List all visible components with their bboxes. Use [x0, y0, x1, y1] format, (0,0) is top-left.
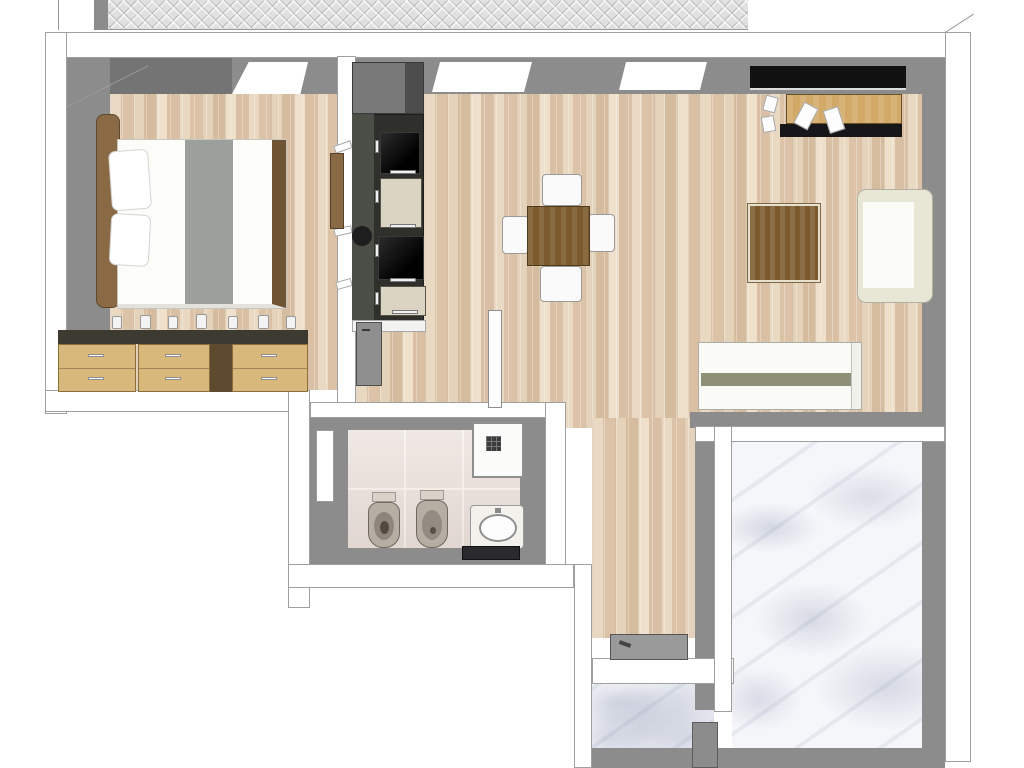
pillow [109, 213, 152, 267]
herringbone-paving [108, 0, 748, 30]
toilet-bowl-center [380, 521, 389, 534]
dining-table [527, 206, 590, 266]
dresser-side-panel [210, 344, 232, 392]
entrance-door-mat [610, 634, 688, 660]
kitchen-sink [352, 226, 372, 246]
corner-sofa [858, 190, 932, 302]
kitchen-tall-cabinet [352, 62, 424, 114]
bidet-basin [422, 510, 442, 540]
washbasin-unit [470, 505, 524, 549]
toilet-cistern [372, 492, 396, 502]
paper-sheet [761, 115, 777, 133]
appliance-handle [392, 310, 418, 314]
daybed-armrest [851, 343, 861, 409]
faucet [495, 508, 501, 513]
appliance-handle [390, 224, 416, 228]
dining-chair [588, 214, 615, 252]
dark-glazed-window [750, 66, 906, 90]
bottle [168, 316, 178, 329]
bottle [196, 314, 207, 329]
bidet [416, 500, 448, 548]
bed-runner [185, 140, 233, 304]
washbasin-bowl [479, 514, 517, 542]
entrance-bottom-wall [592, 658, 734, 684]
door-key-detail [619, 640, 632, 648]
door-handle [362, 329, 370, 331]
dining-chair [540, 266, 582, 302]
appliance-handle [375, 244, 379, 257]
corridor-grey-door [356, 322, 382, 386]
coffee-table [748, 204, 820, 282]
terrace-top-wall [695, 426, 945, 442]
bedroom-bottom-wall [45, 390, 310, 412]
bidet-drain [430, 527, 436, 534]
bottle [286, 316, 296, 329]
right-outer-wall [945, 32, 971, 762]
bottle [140, 315, 151, 329]
dresser [58, 344, 136, 392]
right-wall-face [922, 58, 945, 748]
terrace-left-wall [714, 426, 732, 712]
bottle [228, 316, 238, 329]
bathroom-top-wall [310, 402, 566, 418]
upper-wall-edge-line [58, 0, 59, 30]
appliance-handle [375, 140, 379, 153]
bathroom-bottom-wall [288, 564, 574, 588]
appliance-handle [375, 292, 379, 305]
dining-chair [502, 216, 529, 254]
living-window [619, 62, 707, 90]
top-outer-wall [45, 32, 970, 58]
oven [380, 132, 420, 174]
exterior-wall-stub [692, 722, 718, 768]
appliance-handle [390, 170, 416, 174]
cabinet-side-face [405, 63, 423, 113]
toilet [368, 502, 400, 548]
bathroom-window [316, 430, 334, 502]
bottom-wall-band [592, 748, 945, 768]
terrace-floor [732, 442, 922, 748]
appliance-handle [390, 278, 416, 282]
cooktop [378, 236, 424, 280]
wall-mirror-panel [330, 153, 344, 229]
bathroom-right-wall [545, 402, 566, 586]
dining-window [432, 62, 532, 92]
top-right-corner-line [945, 13, 974, 32]
bidet-fitting [420, 490, 444, 500]
herringbone-side-wall [94, 0, 108, 30]
kitchen-drawer-front [380, 178, 422, 228]
hallway-floor [592, 418, 695, 638]
shower-drain [486, 436, 501, 451]
appliance-handle [375, 190, 379, 203]
kitchen-counter-edge [352, 114, 374, 322]
hallway-left-wall [574, 564, 592, 768]
bottle [112, 316, 122, 329]
daybed [698, 342, 862, 410]
bed-headboard [96, 114, 120, 308]
dresser [138, 344, 210, 392]
dining-chair [542, 174, 582, 206]
open-white-door [488, 310, 502, 408]
pillow [108, 149, 152, 212]
dresser-top-panel [58, 330, 308, 344]
dresser [232, 344, 308, 392]
bottle [258, 315, 269, 329]
floor-plan-canvas [0, 0, 1024, 768]
vanity-counter [462, 546, 520, 560]
shower-tray [472, 422, 524, 478]
daybed-stripe [701, 373, 859, 386]
